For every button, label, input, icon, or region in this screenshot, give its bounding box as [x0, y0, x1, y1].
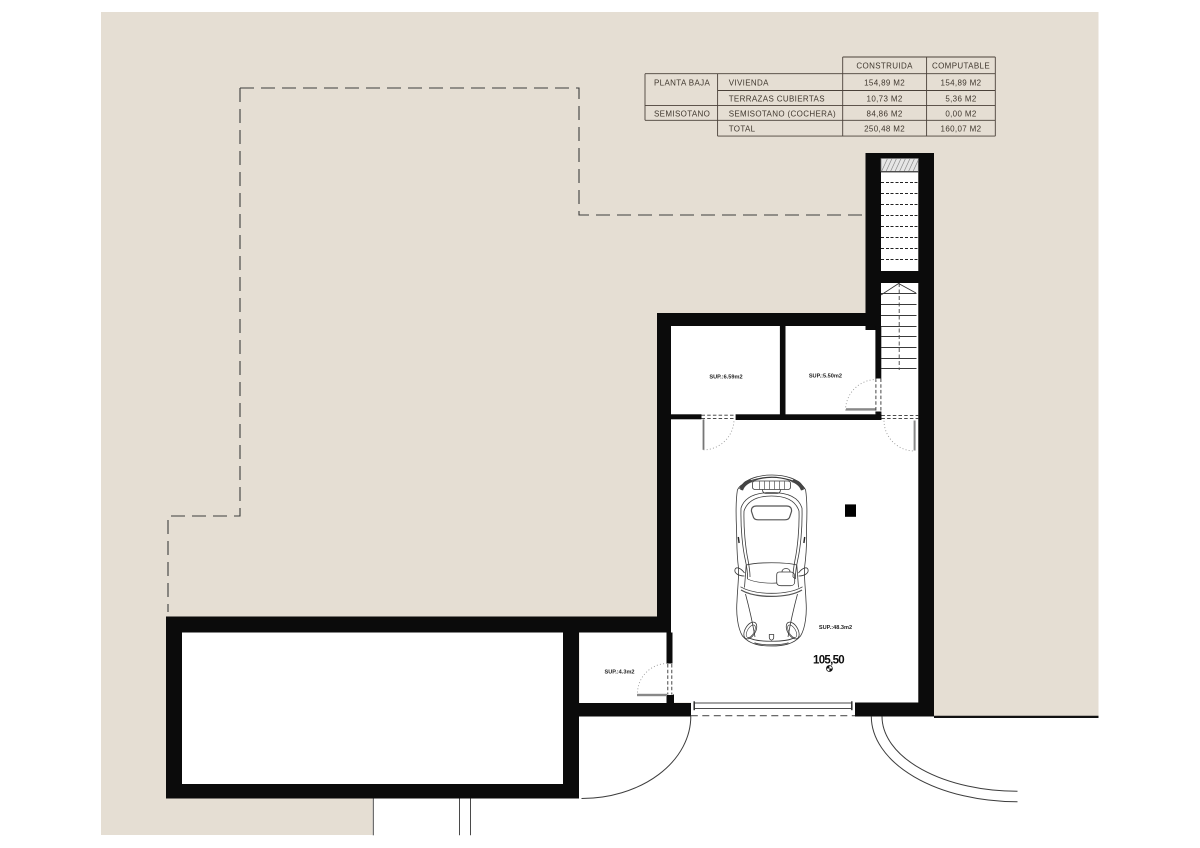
svg-text:SEMISOTANO (COCHERA): SEMISOTANO (COCHERA): [729, 109, 836, 118]
svg-text:250,48 M2: 250,48 M2: [864, 125, 905, 134]
svg-text:SUP.:5.50m2: SUP.:5.50m2: [809, 374, 842, 380]
svg-text:CONSTRUIDA: CONSTRUIDA: [856, 62, 913, 71]
svg-text:VIVIENDA: VIVIENDA: [729, 78, 769, 87]
svg-text:154,89 M2: 154,89 M2: [864, 78, 905, 87]
svg-text:SUP.:48.3m2: SUP.:48.3m2: [819, 625, 852, 631]
svg-text:PLANTA BAJA: PLANTA BAJA: [654, 78, 710, 87]
svg-text:105,50: 105,50: [813, 654, 844, 666]
svg-text:154,89 M2: 154,89 M2: [941, 78, 982, 87]
svg-text:10,73 M2: 10,73 M2: [867, 94, 903, 103]
svg-text:5,36 M2: 5,36 M2: [945, 94, 977, 103]
svg-text:SUP.:4.3m2: SUP.:4.3m2: [604, 670, 634, 676]
svg-text:0,00 M2: 0,00 M2: [945, 109, 977, 118]
svg-text:SEMISOTANO: SEMISOTANO: [654, 109, 710, 118]
svg-text:TERRAZAS CUBIERTAS: TERRAZAS CUBIERTAS: [729, 94, 825, 103]
svg-text:COMPUTABLE: COMPUTABLE: [932, 62, 990, 71]
svg-text:160,07 M2: 160,07 M2: [941, 125, 982, 134]
svg-text:84,86 M2: 84,86 M2: [867, 109, 903, 118]
svg-text:SUP.:6.59m2: SUP.:6.59m2: [709, 375, 742, 381]
svg-text:TOTAL: TOTAL: [729, 125, 756, 134]
